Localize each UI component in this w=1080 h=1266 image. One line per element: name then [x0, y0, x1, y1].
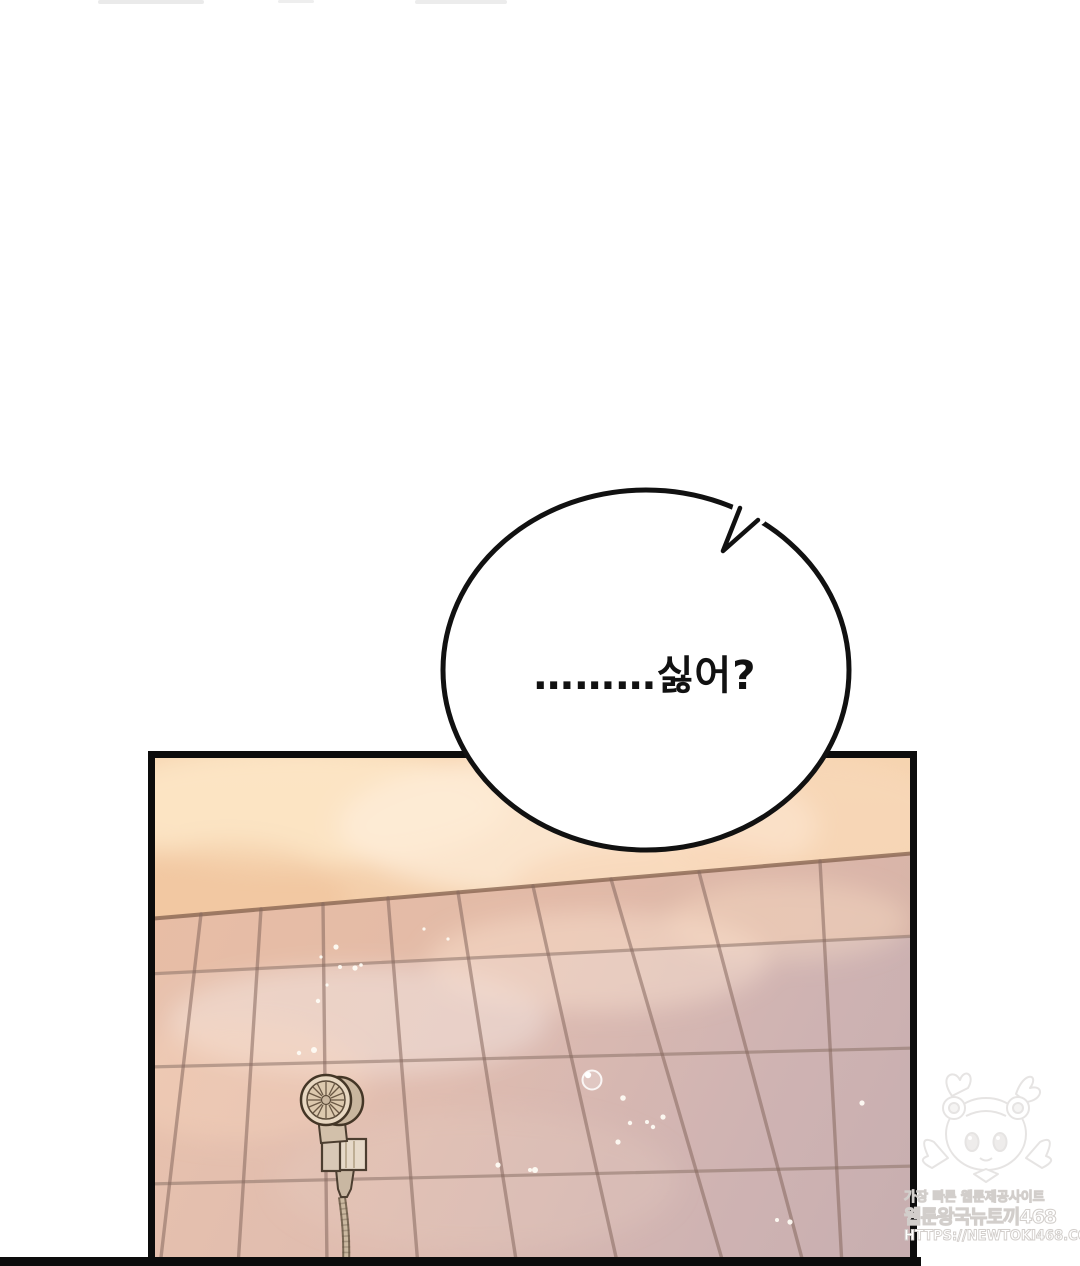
top-cutoff-mark: [278, 0, 314, 3]
tile-wall: [148, 853, 917, 1266]
shower-hose: [342, 1197, 346, 1266]
comic-page[interactable]: ………싫어? 가장 빠른 웹툰제공사이트 웹툰왕국뉴토끼468: [0, 0, 1080, 1266]
top-cutoff-mark: [98, 0, 204, 4]
wall-bracket: [339, 1139, 366, 1170]
watermark-url: HTTPS://NEWTOKI468.COM: [904, 1228, 1080, 1244]
speech-bubble-text: ………싫어?: [445, 648, 845, 696]
bottom-panel-divider: [0, 1257, 921, 1266]
top-cutoff-mark: [415, 0, 507, 4]
shower-head-icon: [301, 1075, 363, 1125]
water-droplet: [583, 1071, 602, 1090]
site-watermark: 가장 빠른 웹툰제공사이트 웹툰왕국뉴토끼468 HTTPS://NEWTOKI…: [900, 1060, 1080, 1266]
watermark-site-name: 웹툰왕국뉴토끼468: [904, 1202, 1056, 1229]
watermark-character-icon: [918, 1066, 1058, 1190]
